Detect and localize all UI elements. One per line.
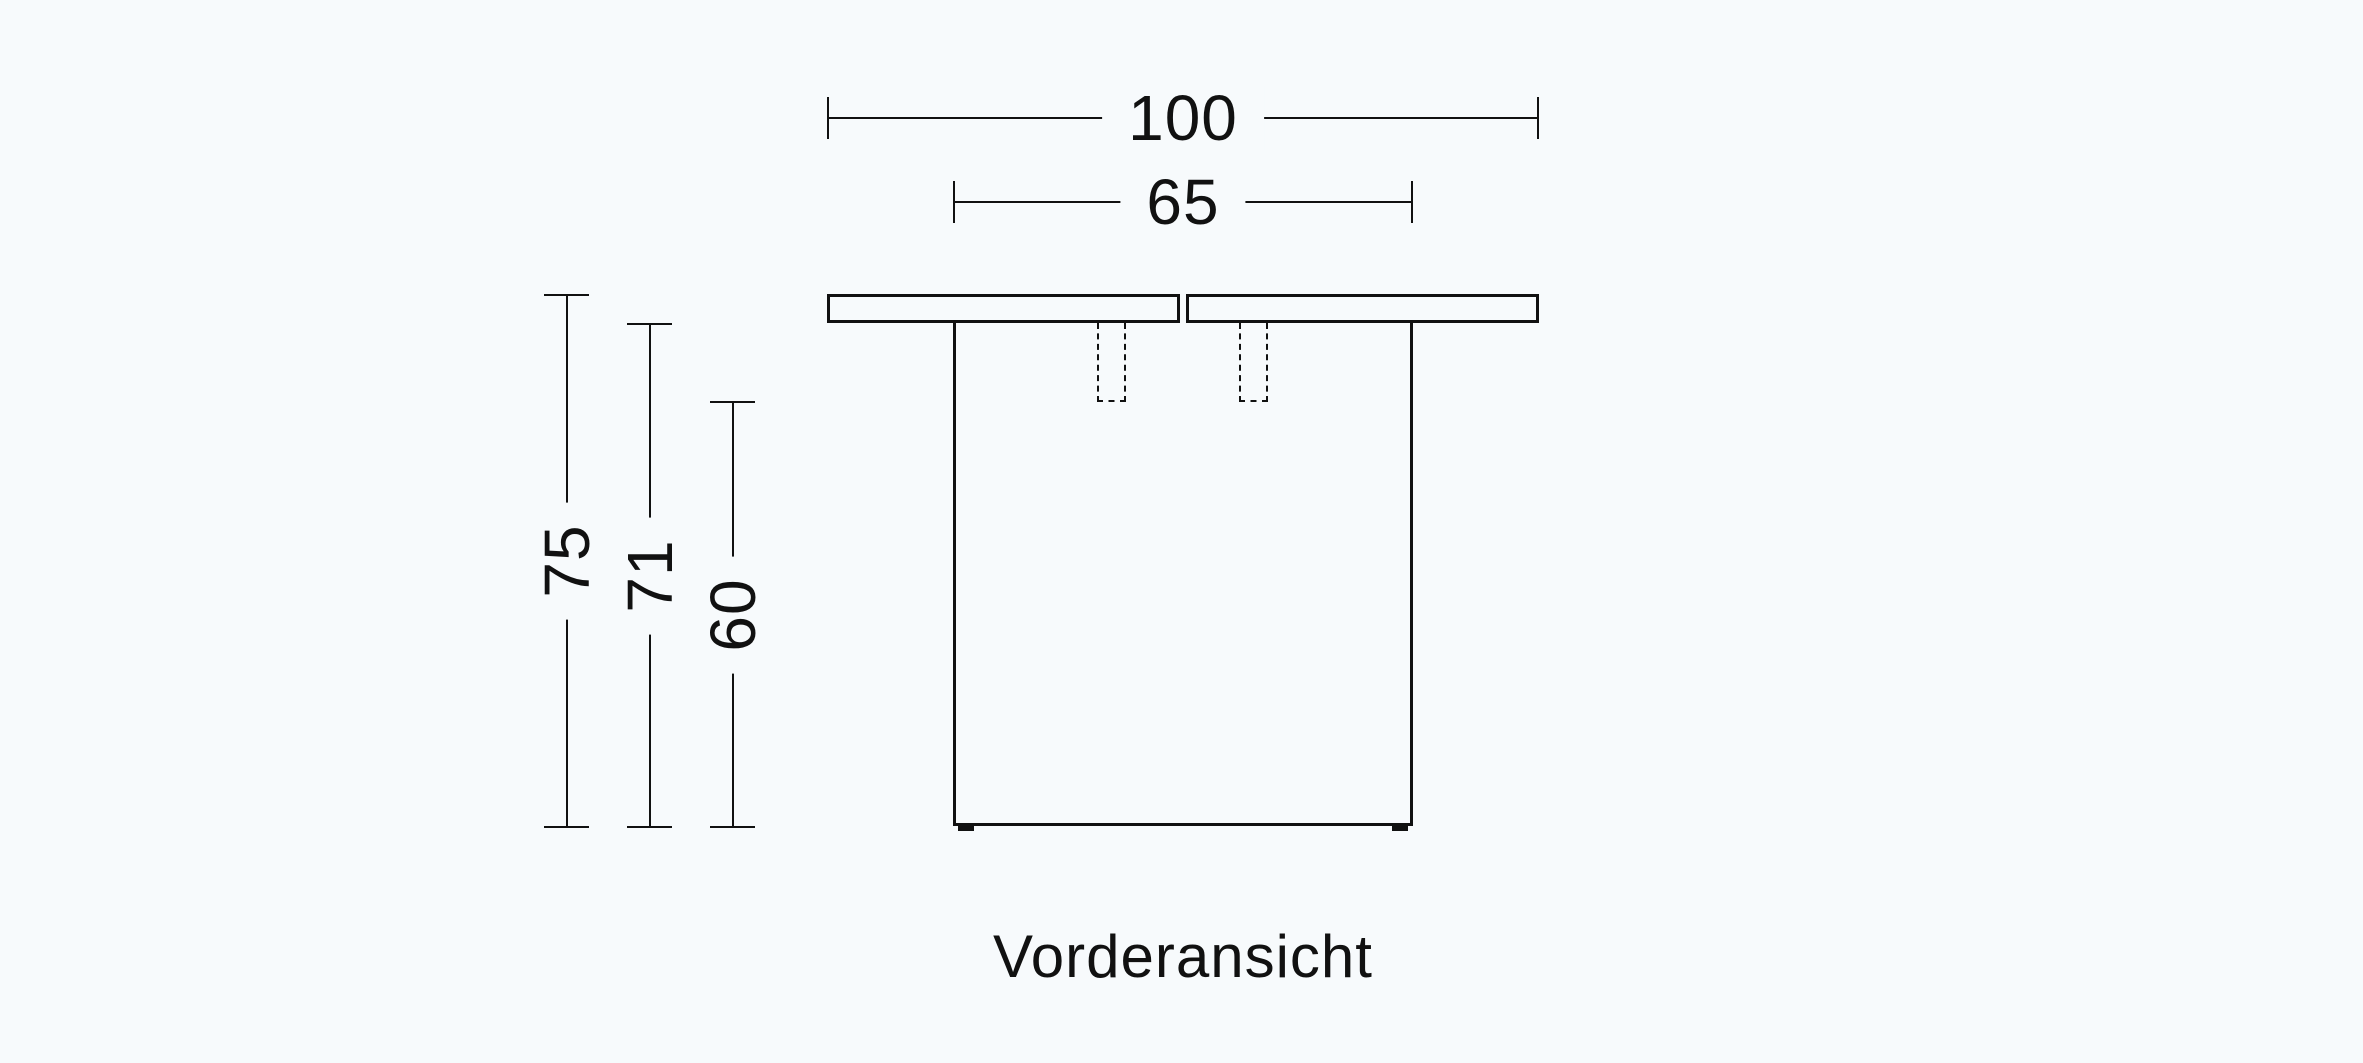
dimension-end-tick — [710, 826, 755, 828]
tabletop-left-half — [827, 294, 1180, 323]
dimension-end-tick — [827, 97, 829, 139]
view-caption: Vorderansicht — [827, 921, 1539, 993]
dimension-label-clearance-height: 60 — [701, 556, 765, 673]
tabletop-right-half — [1186, 294, 1539, 323]
dimension-end-tick — [953, 181, 955, 223]
dimension-height-under-top: 71 — [627, 323, 672, 828]
dimension-label-total-width: 100 — [1102, 86, 1264, 150]
drawing-canvas: 100 65 75 71 60 Vorderansicht — [0, 0, 2363, 1063]
foot-glide-right — [1392, 823, 1408, 831]
dimension-total-height: 75 — [544, 294, 589, 828]
dimension-clearance-height: 60 — [710, 401, 755, 828]
slide-bracket-left-hidden-edge — [1097, 323, 1126, 402]
dimension-end-tick — [544, 294, 589, 296]
dimension-end-tick — [1537, 97, 1539, 139]
dimension-total-width: 100 — [827, 97, 1539, 139]
foot-glide-left — [958, 823, 974, 831]
dimension-label-height-under-top: 71 — [618, 517, 682, 634]
dimension-label-base-width: 65 — [1120, 170, 1245, 234]
dimension-label-total-height: 75 — [535, 502, 599, 619]
dimension-end-tick — [627, 826, 672, 828]
slide-bracket-right-hidden-edge — [1239, 323, 1268, 402]
dimension-base-width: 65 — [953, 181, 1413, 223]
dimension-end-tick — [544, 826, 589, 828]
dimension-end-tick — [627, 323, 672, 325]
dimension-end-tick — [710, 401, 755, 403]
pedestal-base — [953, 323, 1413, 826]
dimension-end-tick — [1411, 181, 1413, 223]
